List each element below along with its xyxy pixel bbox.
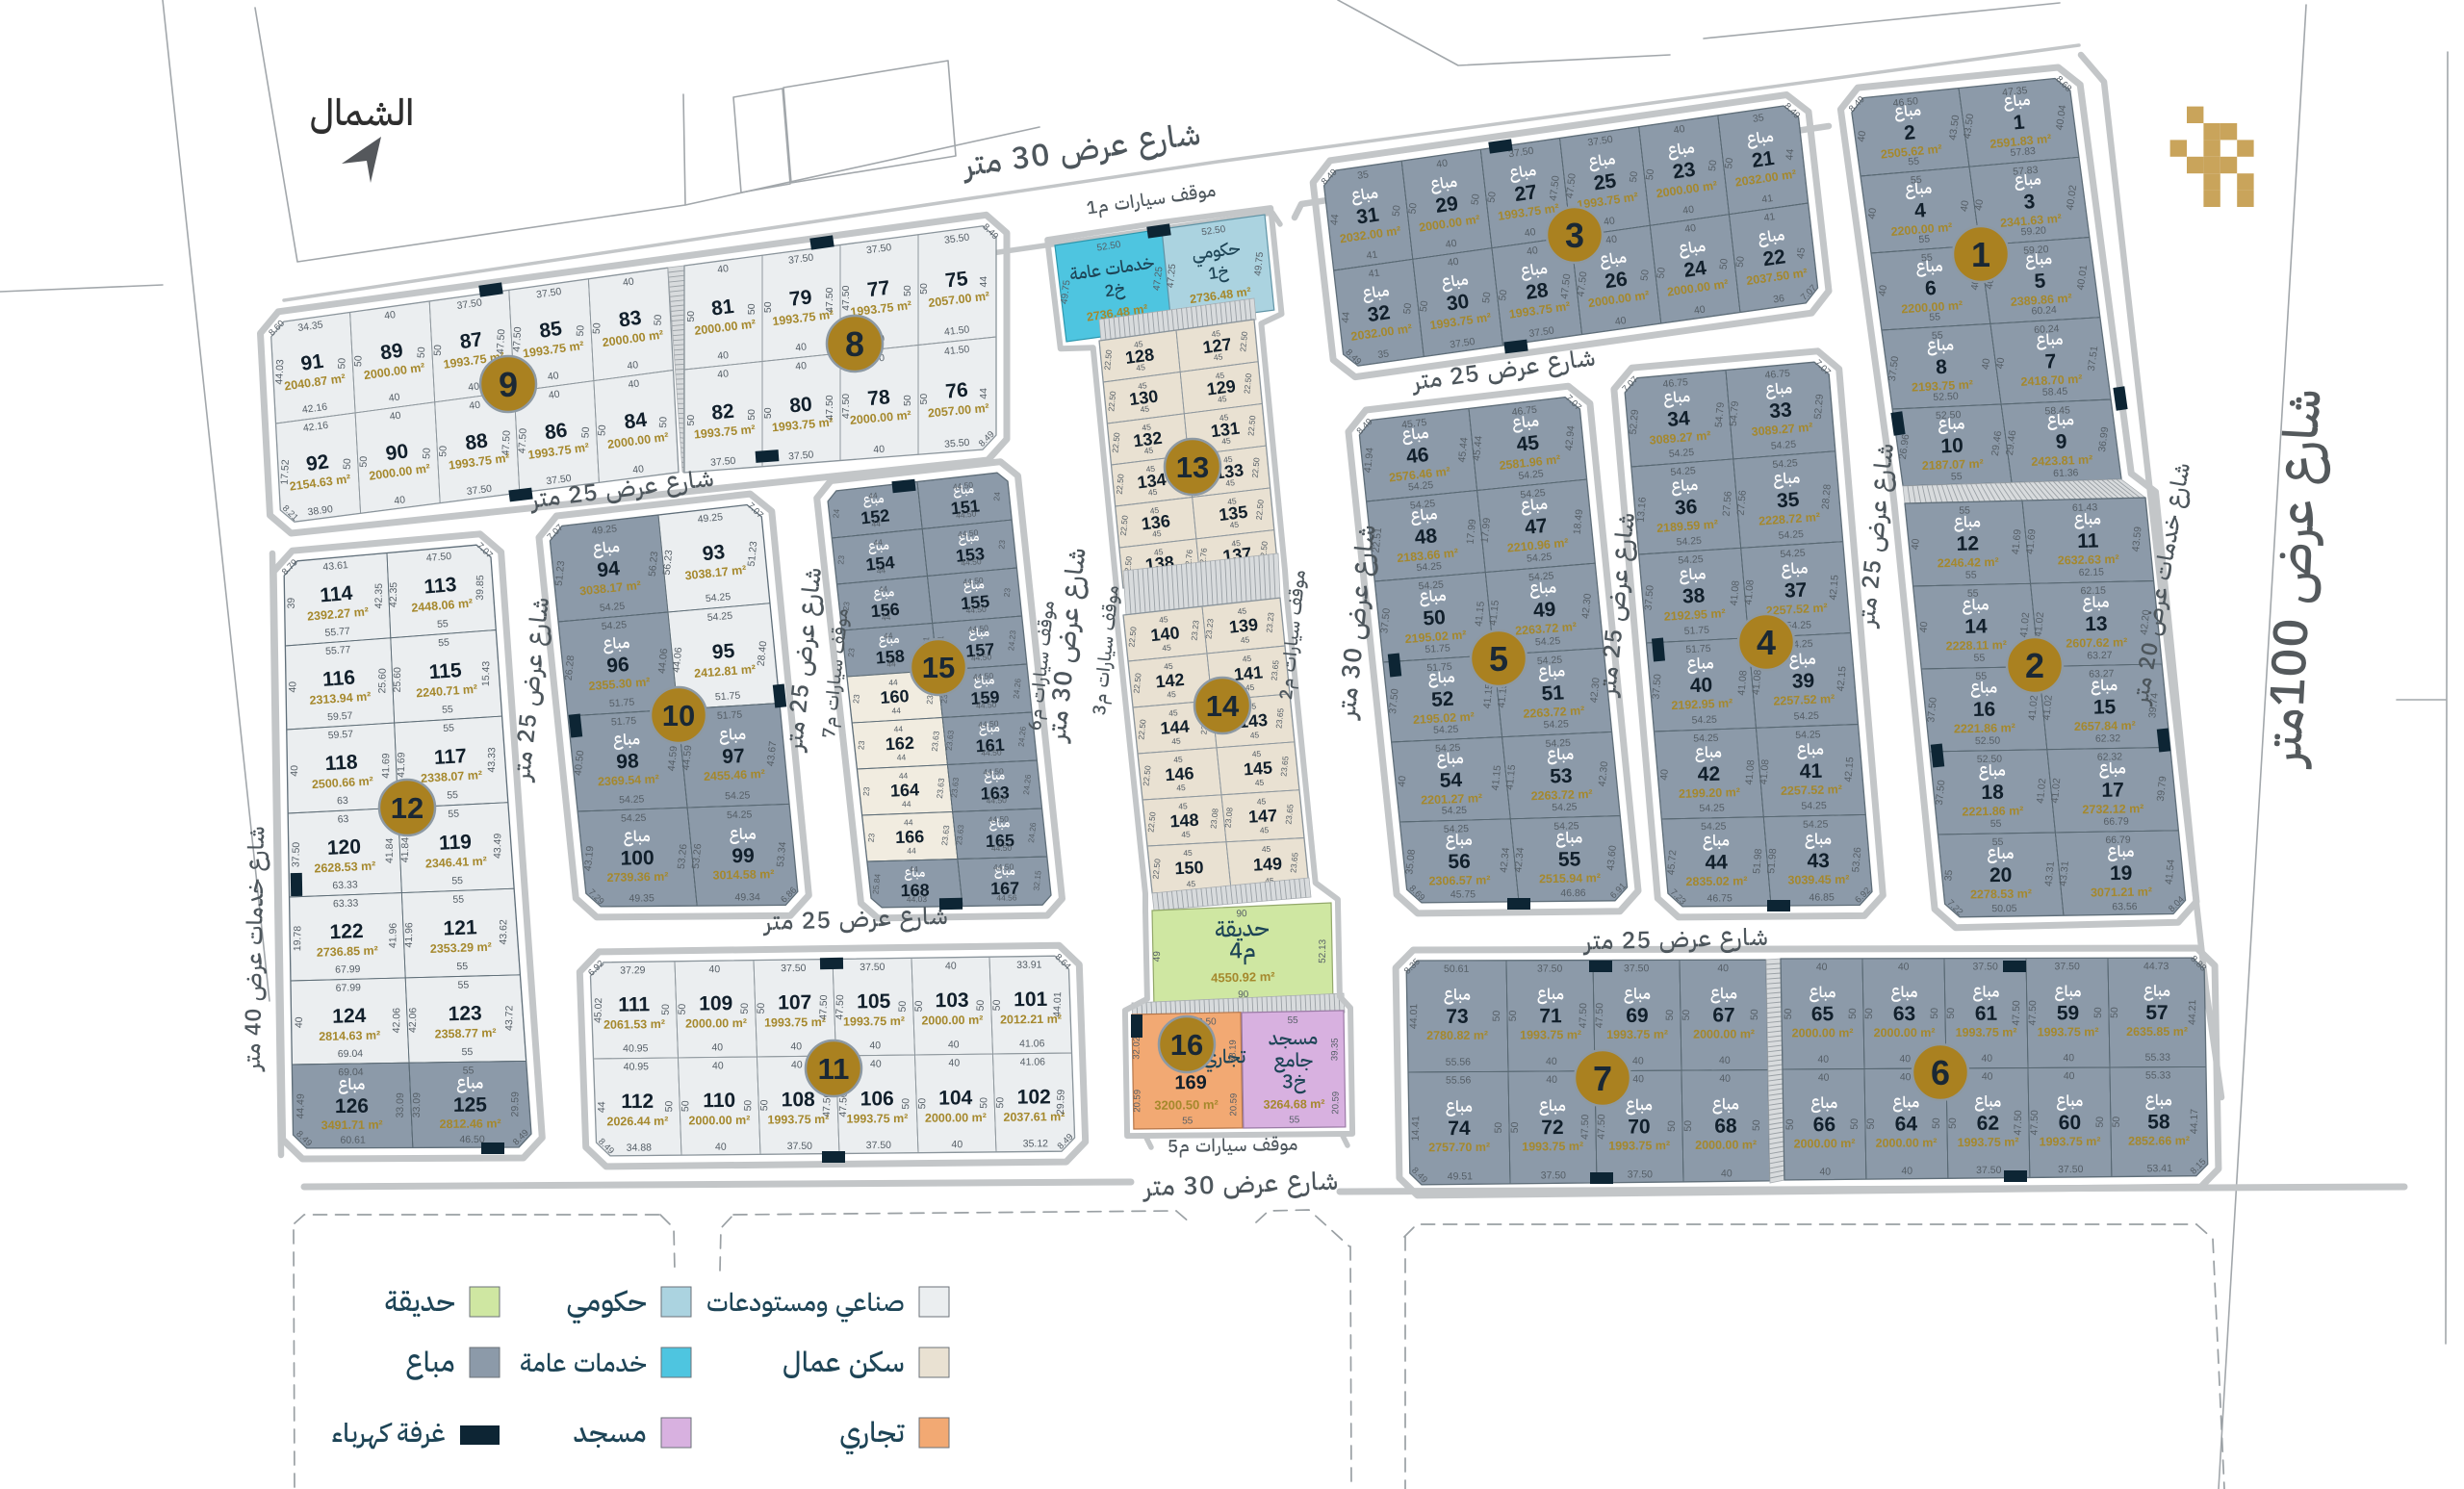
svg-text:18: 18 — [1981, 782, 2004, 804]
svg-text:54.25: 54.25 — [1418, 578, 1444, 592]
svg-text:55: 55 — [1973, 653, 1985, 664]
svg-text:25.60: 25.60 — [376, 668, 388, 694]
svg-text:50: 50 — [416, 347, 428, 358]
svg-text:1993.75 m²: 1993.75 m² — [1956, 1026, 2017, 1040]
svg-text:45: 45 — [1143, 445, 1154, 455]
svg-text:40: 40 — [389, 410, 401, 423]
svg-text:40: 40 — [1684, 222, 1697, 236]
svg-text:12: 12 — [391, 791, 423, 825]
svg-text:105: 105 — [857, 990, 891, 1013]
svg-text:55.33: 55.33 — [2145, 1069, 2171, 1081]
svg-text:50: 50 — [342, 458, 354, 470]
svg-text:50: 50 — [902, 285, 913, 296]
svg-text:17.52: 17.52 — [279, 459, 292, 485]
svg-text:50: 50 — [758, 1099, 770, 1111]
svg-text:47.50: 47.50 — [834, 994, 846, 1020]
svg-text:54.25: 54.25 — [1780, 548, 1806, 561]
svg-text:20: 20 — [1989, 864, 2013, 886]
svg-text:44.50: 44.50 — [961, 556, 982, 568]
svg-text:22.50: 22.50 — [1242, 372, 1253, 394]
svg-text:2635.85 m²: 2635.85 m² — [2126, 1025, 2188, 1039]
svg-text:90: 90 — [384, 440, 409, 465]
svg-text:50: 50 — [1423, 606, 1447, 630]
svg-text:2228.11 m²: 2228.11 m² — [1946, 638, 2008, 653]
svg-text:2257.52 m²: 2257.52 m² — [1781, 783, 1842, 798]
svg-text:40: 40 — [1877, 284, 1889, 296]
svg-text:2369.54 m²: 2369.54 m² — [598, 772, 660, 788]
svg-text:9: 9 — [499, 365, 518, 404]
svg-text:59.57: 59.57 — [327, 729, 353, 742]
svg-text:41.96: 41.96 — [403, 922, 415, 948]
svg-text:40: 40 — [1689, 674, 1712, 697]
svg-text:45: 45 — [1153, 547, 1164, 557]
svg-text:35.12: 35.12 — [1023, 1138, 1049, 1149]
svg-text:54.25: 54.25 — [1416, 560, 1442, 574]
svg-text:42.35: 42.35 — [373, 583, 385, 609]
svg-text:113: 113 — [423, 574, 458, 599]
svg-text:47.50: 47.50 — [516, 427, 528, 453]
svg-text:2423.81 m²: 2423.81 m² — [2031, 453, 2092, 469]
svg-text:44: 44 — [978, 276, 989, 288]
svg-text:125: 125 — [453, 1094, 488, 1117]
svg-text:40: 40 — [1917, 621, 1930, 633]
svg-text:45: 45 — [1178, 801, 1188, 811]
svg-text:55.77: 55.77 — [324, 626, 350, 639]
svg-text:77: 77 — [866, 277, 891, 302]
svg-text:50: 50 — [1638, 269, 1651, 281]
svg-text:16: 16 — [1170, 1028, 1203, 1062]
svg-text:37: 37 — [1784, 578, 1808, 602]
svg-text:33: 33 — [1768, 398, 1792, 423]
svg-text:75: 75 — [944, 268, 969, 293]
svg-text:62: 62 — [1977, 1113, 2000, 1135]
svg-text:33.91: 33.91 — [1016, 960, 1042, 971]
svg-text:44: 44 — [904, 817, 913, 827]
svg-text:41.08: 41.08 — [1758, 758, 1771, 784]
svg-text:54: 54 — [1439, 769, 1463, 792]
svg-text:50: 50 — [1509, 1121, 1521, 1133]
svg-text:41.08: 41.08 — [1729, 579, 1742, 605]
svg-text:25.60: 25.60 — [392, 667, 403, 693]
svg-text:50: 50 — [421, 448, 433, 459]
svg-text:101: 101 — [1014, 988, 1048, 1011]
svg-text:50: 50 — [1628, 170, 1640, 183]
svg-text:124: 124 — [332, 1005, 367, 1028]
svg-text:40: 40 — [547, 370, 559, 382]
svg-text:50: 50 — [1497, 289, 1509, 301]
svg-text:104: 104 — [938, 1087, 973, 1109]
svg-text:44: 44 — [896, 752, 906, 761]
svg-text:3: 3 — [2023, 191, 2036, 214]
svg-text:37.50: 37.50 — [1541, 1169, 1567, 1181]
svg-text:55: 55 — [462, 1046, 474, 1058]
svg-text:44: 44 — [902, 799, 911, 809]
svg-text:144: 144 — [1160, 717, 1191, 738]
svg-text:44: 44 — [886, 658, 896, 669]
svg-text:50: 50 — [1931, 1117, 1942, 1129]
svg-text:40: 40 — [1719, 1055, 1731, 1066]
svg-text:39: 39 — [1791, 670, 1814, 693]
svg-text:43.61: 43.61 — [322, 559, 348, 573]
svg-text:39: 39 — [286, 598, 297, 609]
svg-text:40: 40 — [795, 341, 808, 353]
svg-text:55: 55 — [1182, 1116, 1193, 1126]
svg-text:44.50: 44.50 — [983, 766, 1004, 777]
svg-text:44.50: 44.50 — [973, 671, 994, 681]
svg-text:1993.75 m²: 1993.75 m² — [843, 1014, 905, 1029]
svg-text:120: 120 — [326, 835, 361, 860]
svg-text:34: 34 — [1666, 407, 1691, 431]
svg-text:50: 50 — [746, 409, 757, 421]
svg-text:2000.00 m²: 2000.00 m² — [1874, 1026, 1936, 1040]
svg-text:121: 121 — [443, 916, 477, 939]
svg-text:40: 40 — [1436, 158, 1449, 171]
svg-text:45: 45 — [1251, 749, 1261, 759]
svg-text:40: 40 — [1856, 130, 1868, 142]
svg-text:2732.12 m²: 2732.12 m² — [2082, 802, 2143, 816]
svg-text:80: 80 — [788, 394, 812, 418]
svg-text:1993.75 m²: 1993.75 m² — [1520, 1028, 1581, 1041]
svg-text:19: 19 — [2110, 862, 2133, 885]
svg-text:21: 21 — [1751, 147, 1777, 172]
svg-text:97: 97 — [722, 745, 745, 768]
svg-text:54.25: 54.25 — [1409, 498, 1435, 512]
svg-text:45: 45 — [1240, 634, 1250, 645]
svg-text:50: 50 — [358, 455, 371, 467]
svg-text:45: 45 — [1186, 879, 1195, 888]
svg-text:36: 36 — [1674, 496, 1698, 520]
svg-text:73: 73 — [1446, 1006, 1468, 1028]
svg-text:52.50: 52.50 — [1977, 754, 2003, 766]
svg-text:71: 71 — [1539, 1005, 1562, 1027]
svg-text:40: 40 — [1980, 357, 1992, 370]
svg-text:19.78: 19.78 — [292, 926, 303, 952]
svg-text:46.86: 46.86 — [1560, 887, 1586, 899]
svg-text:100: 100 — [620, 847, 654, 870]
svg-text:41.08: 41.08 — [1735, 670, 1749, 696]
svg-text:10: 10 — [1940, 434, 1963, 457]
svg-text:50: 50 — [1751, 1119, 1762, 1131]
svg-text:45: 45 — [1168, 707, 1179, 718]
svg-text:50: 50 — [575, 324, 587, 336]
svg-text:50: 50 — [579, 426, 592, 438]
svg-text:2257.52 m²: 2257.52 m² — [1773, 692, 1835, 708]
svg-text:55: 55 — [1992, 836, 2004, 848]
svg-text:84: 84 — [623, 409, 648, 434]
svg-text:47.50: 47.50 — [495, 328, 507, 354]
svg-text:54.25: 54.25 — [1795, 729, 1821, 741]
svg-text:50: 50 — [918, 394, 930, 405]
svg-text:42: 42 — [1697, 763, 1720, 786]
svg-text:112: 112 — [621, 1091, 654, 1113]
svg-text:2: 2 — [1903, 121, 1916, 144]
svg-text:24: 24 — [831, 508, 841, 519]
svg-text:52.50: 52.50 — [1975, 735, 2001, 748]
svg-text:45: 45 — [1221, 435, 1232, 446]
svg-text:62.15: 62.15 — [2079, 567, 2105, 579]
svg-text:50: 50 — [1507, 1010, 1519, 1021]
svg-text:46.75: 46.75 — [1764, 368, 1790, 381]
svg-text:40: 40 — [1673, 123, 1685, 137]
svg-text:2835.02 m²: 2835.02 m² — [1685, 874, 1747, 888]
svg-text:54.25: 54.25 — [1772, 457, 1798, 471]
svg-text:55: 55 — [457, 979, 469, 990]
svg-text:50: 50 — [1390, 204, 1402, 217]
svg-text:115: 115 — [428, 659, 463, 683]
svg-text:50: 50 — [1655, 267, 1667, 279]
svg-text:2358.77 m²: 2358.77 m² — [435, 1026, 497, 1040]
svg-text:62.32: 62.32 — [2097, 751, 2123, 763]
svg-text:50: 50 — [762, 301, 774, 313]
svg-text:51.98: 51.98 — [1765, 848, 1779, 874]
svg-text:47.50: 47.50 — [1596, 1114, 1607, 1140]
svg-text:55: 55 — [1289, 1115, 1300, 1125]
svg-text:99: 99 — [731, 845, 755, 867]
svg-text:28: 28 — [1525, 279, 1551, 304]
svg-text:78: 78 — [866, 386, 891, 410]
svg-text:58.45: 58.45 — [2042, 386, 2068, 398]
svg-text:55: 55 — [452, 893, 464, 905]
svg-text:40: 40 — [1524, 226, 1536, 240]
svg-text:44.73: 44.73 — [2143, 961, 2169, 972]
svg-text:50: 50 — [762, 407, 774, 419]
svg-text:47.50: 47.50 — [817, 994, 830, 1020]
svg-text:40: 40 — [1901, 1166, 1912, 1177]
svg-text:45: 45 — [1225, 477, 1236, 488]
svg-text:40: 40 — [1898, 962, 1910, 973]
svg-text:47.50: 47.50 — [425, 551, 451, 564]
svg-text:63: 63 — [337, 795, 348, 808]
svg-text:2000.00 m²: 2000.00 m² — [1693, 1027, 1755, 1040]
svg-text:52.50: 52.50 — [1933, 391, 1959, 403]
svg-text:58: 58 — [2147, 1111, 2170, 1133]
svg-text:50: 50 — [663, 1100, 675, 1112]
svg-text:59.20: 59.20 — [2023, 244, 2049, 257]
svg-text:44.50: 44.50 — [965, 604, 987, 616]
svg-text:2000.00 m²: 2000.00 m² — [1792, 1026, 1854, 1040]
svg-text:45: 45 — [1164, 661, 1174, 672]
svg-text:54.25: 54.25 — [601, 619, 627, 632]
svg-text:45: 45 — [1231, 538, 1242, 549]
svg-text:50: 50 — [1406, 202, 1419, 215]
svg-text:40: 40 — [632, 463, 645, 475]
svg-text:55.56: 55.56 — [1446, 1057, 1472, 1068]
svg-text:50: 50 — [1749, 1009, 1760, 1020]
svg-text:126: 126 — [335, 1095, 369, 1117]
svg-text:123: 123 — [448, 1002, 482, 1025]
svg-text:50: 50 — [994, 1096, 1006, 1108]
svg-text:142: 142 — [1155, 670, 1186, 692]
svg-text:50: 50 — [1849, 1118, 1861, 1130]
svg-text:22.50: 22.50 — [1250, 457, 1262, 478]
svg-text:55: 55 — [1918, 233, 1931, 245]
svg-text:37.50: 37.50 — [2058, 1164, 2084, 1175]
svg-text:40: 40 — [1693, 303, 1706, 317]
svg-text:14.41: 14.41 — [1410, 1116, 1422, 1142]
svg-text:7: 7 — [1593, 1059, 1612, 1098]
svg-text:32.02: 32.02 — [1131, 1037, 1142, 1060]
svg-text:69: 69 — [1626, 1005, 1648, 1027]
svg-text:44.50: 44.50 — [967, 623, 988, 634]
svg-text:44.50: 44.50 — [986, 795, 1007, 806]
svg-text:44: 44 — [888, 678, 898, 688]
svg-text:2061.53 m²: 2061.53 m² — [603, 1017, 665, 1032]
svg-text:119: 119 — [438, 831, 472, 855]
svg-text:5: 5 — [1489, 639, 1508, 679]
svg-text:35: 35 — [1752, 112, 1764, 125]
svg-text:4: 4 — [1913, 199, 1927, 222]
svg-text:50: 50 — [437, 446, 449, 457]
svg-text:38: 38 — [1681, 584, 1706, 607]
svg-text:50: 50 — [1485, 191, 1498, 203]
svg-text:54.25: 54.25 — [1693, 732, 1719, 745]
svg-text:51.75: 51.75 — [1426, 661, 1452, 675]
svg-text:2757.70 m²: 2757.70 m² — [1428, 1141, 1490, 1155]
svg-text:44.50: 44.50 — [993, 861, 1014, 872]
svg-text:47.50: 47.50 — [500, 430, 512, 456]
svg-text:41.06: 41.06 — [1020, 1056, 1046, 1067]
svg-text:54.25: 54.25 — [1770, 439, 1796, 452]
svg-text:54.25: 54.25 — [1435, 742, 1461, 755]
svg-text:146: 146 — [1165, 763, 1194, 784]
svg-text:7: 7 — [2044, 350, 2057, 373]
svg-text:42.15: 42.15 — [1842, 757, 1856, 783]
svg-text:40: 40 — [1819, 1167, 1831, 1178]
svg-text:40: 40 — [1546, 1074, 1557, 1086]
svg-text:54.79: 54.79 — [1713, 401, 1727, 427]
svg-text:50: 50 — [746, 303, 757, 315]
svg-text:42.06: 42.06 — [391, 1008, 402, 1034]
svg-text:45.02: 45.02 — [592, 997, 604, 1023]
svg-text:44: 44 — [868, 490, 879, 501]
svg-text:8: 8 — [845, 324, 864, 364]
svg-text:32: 32 — [1366, 301, 1391, 326]
svg-text:41: 41 — [1366, 248, 1378, 262]
svg-text:35.50: 35.50 — [944, 437, 970, 450]
svg-text:110: 110 — [703, 1090, 735, 1112]
svg-text:41: 41 — [1761, 193, 1774, 206]
svg-text:54.25: 54.25 — [619, 793, 645, 806]
svg-text:57.83: 57.83 — [2010, 145, 2036, 159]
svg-text:40: 40 — [1682, 204, 1695, 218]
svg-text:2739.36 m²: 2739.36 m² — [606, 870, 668, 885]
svg-text:54.25: 54.25 — [1543, 718, 1569, 731]
svg-text:44.50: 44.50 — [988, 814, 1009, 825]
svg-text:3264.68 m²: 3264.68 m² — [1263, 1097, 1324, 1112]
svg-text:45: 45 — [1242, 654, 1252, 664]
svg-text:1993.75 m²: 1993.75 m² — [1522, 1140, 1583, 1154]
svg-text:2000.00 m²: 2000.00 m² — [925, 1111, 987, 1125]
svg-text:40: 40 — [945, 961, 957, 972]
svg-text:40: 40 — [1721, 1168, 1732, 1179]
svg-text:37.50: 37.50 — [1643, 584, 1656, 610]
svg-text:54.25: 54.25 — [725, 789, 751, 802]
svg-text:63.27: 63.27 — [2087, 650, 2113, 662]
svg-text:81: 81 — [710, 295, 735, 321]
svg-text:44: 44 — [882, 612, 892, 623]
svg-text:52.13: 52.13 — [1318, 938, 1328, 963]
svg-text:91: 91 — [299, 350, 325, 375]
svg-text:44: 44 — [978, 388, 989, 399]
svg-text:76: 76 — [944, 379, 968, 403]
svg-text:44.50: 44.50 — [991, 843, 1013, 854]
svg-text:50: 50 — [739, 1003, 751, 1014]
svg-text:82: 82 — [710, 400, 734, 424]
svg-text:40: 40 — [873, 444, 885, 456]
svg-text:25: 25 — [1592, 169, 1618, 194]
svg-text:54.25: 54.25 — [1793, 710, 1819, 723]
svg-text:50.05: 50.05 — [1991, 903, 2017, 914]
svg-text:50: 50 — [336, 357, 348, 369]
svg-text:55: 55 — [1558, 848, 1581, 870]
svg-text:55: 55 — [437, 618, 449, 630]
svg-text:59.57: 59.57 — [327, 710, 353, 724]
svg-text:111: 111 — [618, 993, 650, 1015]
svg-text:60: 60 — [2059, 1112, 2082, 1134]
svg-text:44: 44 — [1340, 311, 1352, 323]
svg-text:2000.00 m²: 2000.00 m² — [688, 1114, 750, 1128]
svg-text:41: 41 — [1763, 211, 1776, 224]
svg-text:63.56: 63.56 — [2112, 901, 2138, 912]
svg-text:15: 15 — [922, 651, 955, 684]
svg-text:23: 23 — [835, 554, 846, 565]
svg-text:44.56: 44.56 — [996, 892, 1017, 902]
svg-text:1993.75 m²: 1993.75 m² — [1608, 1139, 1670, 1153]
svg-text:44: 44 — [909, 864, 918, 874]
svg-text:40: 40 — [951, 1139, 962, 1150]
svg-text:33.09: 33.09 — [395, 1092, 406, 1118]
svg-text:1993.75 m²: 1993.75 m² — [2040, 1135, 2101, 1149]
svg-text:40: 40 — [469, 399, 481, 412]
svg-text:50: 50 — [2094, 1117, 2106, 1128]
svg-text:55: 55 — [1967, 588, 1979, 600]
svg-text:23: 23 — [996, 539, 1007, 550]
svg-text:54.25: 54.25 — [621, 812, 647, 825]
svg-text:45: 45 — [1254, 778, 1264, 788]
svg-text:22.50: 22.50 — [1118, 515, 1130, 536]
svg-text:2026.44 m²: 2026.44 m² — [606, 1115, 668, 1129]
svg-text:44.17: 44.17 — [2189, 1109, 2200, 1135]
svg-text:45: 45 — [1162, 642, 1172, 653]
svg-text:11: 11 — [818, 1052, 850, 1086]
svg-text:2263.72 m²: 2263.72 m² — [1530, 787, 1592, 803]
svg-text:44: 44 — [1705, 852, 1728, 874]
svg-text:50.61: 50.61 — [1444, 963, 1469, 975]
svg-text:50: 50 — [1401, 302, 1414, 315]
svg-text:9: 9 — [2055, 430, 2067, 452]
svg-text:41: 41 — [1368, 267, 1380, 280]
svg-text:44.21: 44.21 — [2187, 999, 2198, 1025]
svg-text:41.96: 41.96 — [387, 923, 398, 949]
svg-text:55: 55 — [456, 961, 468, 972]
svg-text:139: 139 — [1228, 615, 1259, 637]
svg-text:54.25: 54.25 — [1442, 805, 1468, 817]
svg-text:50: 50 — [657, 416, 670, 427]
svg-text:44: 44 — [871, 519, 882, 529]
svg-text:55: 55 — [1951, 471, 1963, 482]
svg-text:29.59: 29.59 — [509, 1091, 521, 1117]
svg-text:40: 40 — [1982, 1071, 1993, 1083]
svg-text:2780.82 m²: 2780.82 m² — [1426, 1029, 1488, 1042]
svg-text:47.50: 47.50 — [824, 395, 835, 420]
svg-text:95: 95 — [711, 640, 735, 664]
svg-text:47.50: 47.50 — [2027, 1000, 2039, 1026]
svg-text:40: 40 — [790, 1040, 802, 1052]
svg-text:53: 53 — [1550, 765, 1573, 788]
svg-text:37.50: 37.50 — [787, 1141, 813, 1152]
svg-text:61: 61 — [1975, 1003, 1998, 1025]
svg-text:98: 98 — [616, 750, 640, 773]
